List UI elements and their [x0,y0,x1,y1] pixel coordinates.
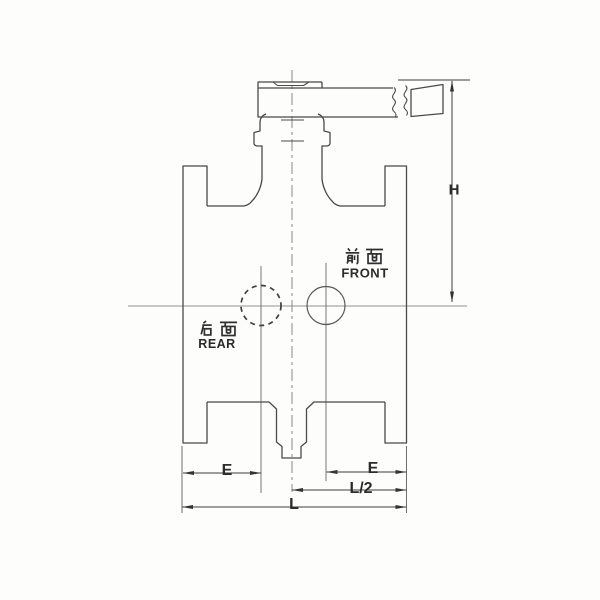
cjk-glyph-qian [345,247,360,265]
e-left-arrow-left [183,471,194,475]
dimension-label-e-left: E [222,463,233,479]
dimension-label-e-right: E [368,461,379,477]
technical-drawing-canvas: H E E L/2 L FRONT [0,0,600,600]
h-arrow-down [450,292,454,303]
rear-label-chinese [199,320,238,337]
l-half-arrow-left [292,488,303,492]
handle-end-piece [411,85,443,117]
dimension-label-l: L [289,497,299,513]
handle-break-squiggle-right [404,86,407,116]
valve-front-view-drawing [0,0,600,600]
e-right-arrow-left [327,470,338,474]
dimension-label-l-half: L/2 [349,481,372,497]
front-label-chinese [345,247,384,265]
right-flange [385,166,407,443]
bonnet-right-profile [318,114,385,206]
l-half-arrow-right [396,488,407,492]
handle [258,82,443,118]
rear-label-english: REAR [198,338,235,351]
cjk-glyph-hou [199,320,214,337]
cjk-glyph-mian-2 [219,320,238,337]
l-arrow-right [396,505,407,509]
handle-bar [258,82,398,117]
centerlines [128,70,467,493]
cjk-glyph-mian [365,247,384,265]
handle-break-squiggle-left [393,88,396,118]
l-arrow-left [182,505,193,509]
left-flange [183,166,207,443]
e-left-arrow-right [250,471,261,475]
body-bottom-drain-boss [207,402,385,458]
dimension-label-h: H [448,183,461,198]
e-right-arrow-right [396,470,407,474]
h-arrow-up [450,81,454,92]
stem-center-marks [281,120,304,141]
bonnet-left-profile [207,114,266,206]
front-label-english: FRONT [341,267,388,280]
valve-body-outline [183,114,407,458]
